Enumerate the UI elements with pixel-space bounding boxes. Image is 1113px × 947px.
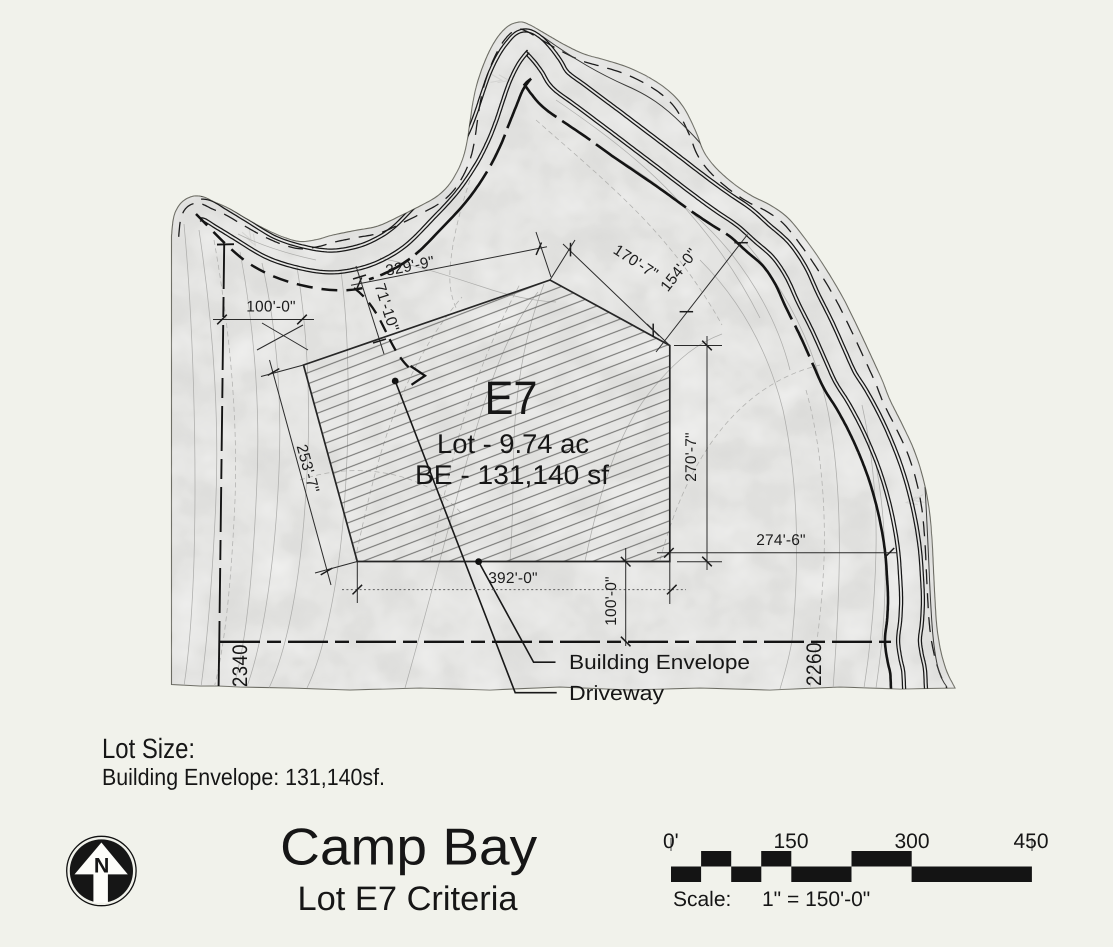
svg-text:270'-7": 270'-7" (683, 432, 700, 482)
svg-text:0': 0' (663, 830, 679, 853)
svg-text:2260: 2260 (803, 642, 826, 686)
svg-text:2340: 2340 (229, 644, 252, 687)
svg-text:392'-0": 392'-0" (488, 570, 538, 587)
svg-text:450: 450 (1013, 830, 1048, 853)
svg-text:Lot - 9.74 ac: Lot - 9.74 ac (437, 429, 589, 459)
svg-text:BE - 131,140 sf: BE - 131,140 sf (415, 460, 610, 490)
svg-text:100'-0": 100'-0" (603, 576, 620, 626)
svg-text:Driveway: Driveway (569, 682, 665, 705)
svg-text:150: 150 (773, 830, 808, 853)
svg-text:300: 300 (894, 830, 929, 853)
svg-text:1" = 150'-0": 1" = 150'-0" (762, 888, 870, 911)
svg-text:Lot Size:: Lot Size: (102, 733, 195, 764)
svg-text:100'-0": 100'-0" (246, 299, 296, 316)
svg-text:E7: E7 (485, 371, 538, 424)
svg-text:Building Envelope: 131,140sf.: Building Envelope: 131,140sf. (102, 764, 385, 790)
svg-text:Scale:: Scale: (673, 888, 731, 911)
svg-text:274'-6": 274'-6" (756, 532, 806, 549)
svg-text:Building Envelope: Building Envelope (569, 651, 750, 674)
svg-text:Camp Bay: Camp Bay (280, 819, 537, 877)
svg-text:Lot E7 Criteria: Lot E7 Criteria (298, 880, 518, 918)
svg-text:N: N (94, 854, 110, 877)
